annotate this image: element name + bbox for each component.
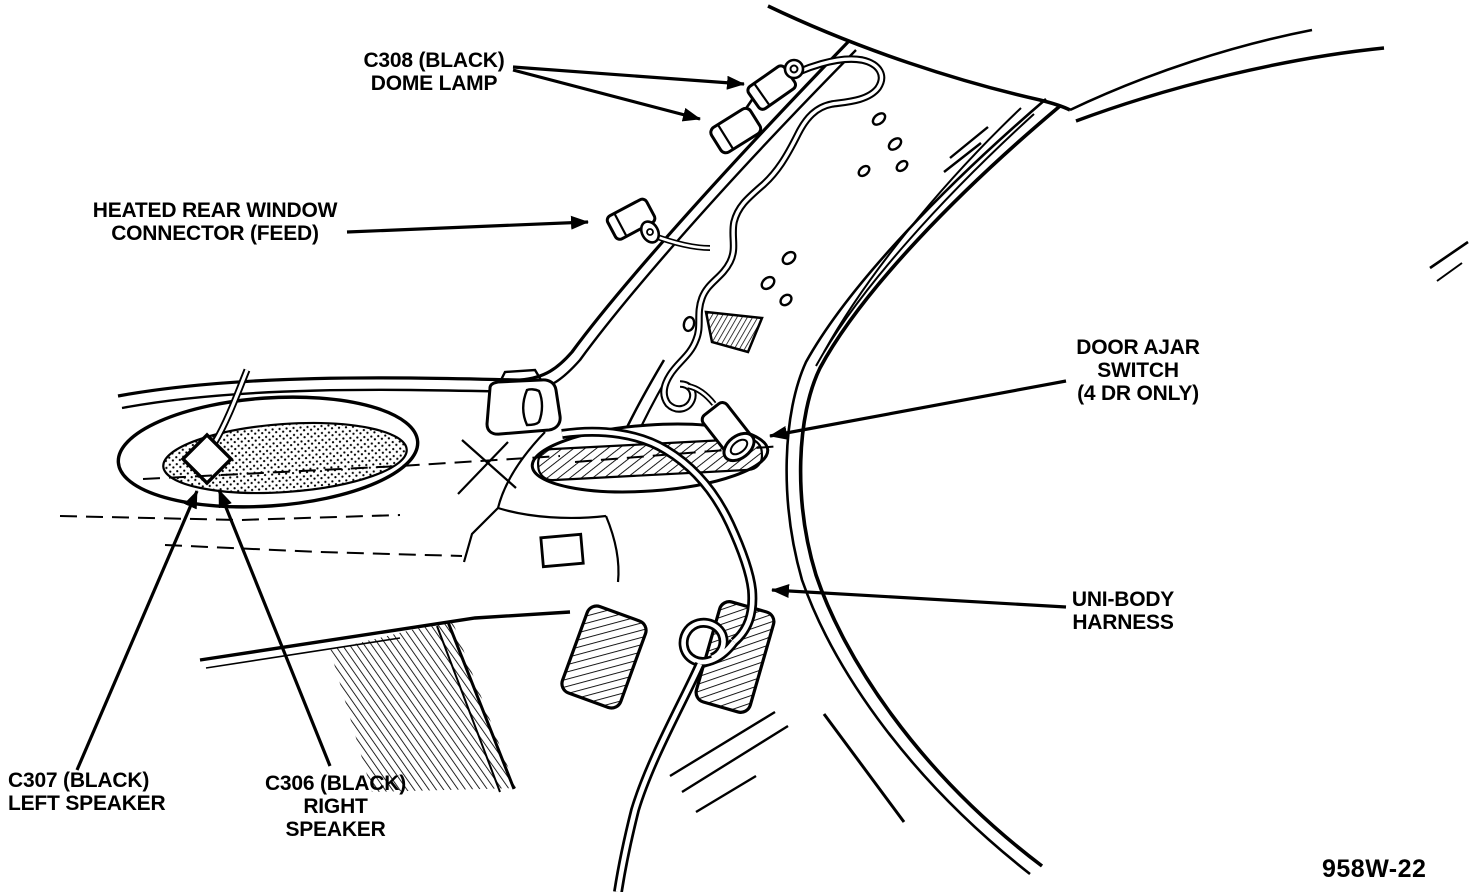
callout-unibody-harness: UNI-BODY HARNESS <box>1058 588 1188 634</box>
wiring-diagram-artwork <box>0 0 1472 892</box>
pillar-access-hole <box>706 312 762 352</box>
figure-number: 958W-22 <box>1322 855 1426 884</box>
callout-c308-dome-lamp: C308 (BLACK) DOME LAMP <box>350 49 518 95</box>
dome-lamp-harness-wire <box>664 59 881 409</box>
hrw-leader <box>347 222 588 232</box>
small-rect-hole <box>541 534 583 566</box>
door-ajar-leader <box>770 381 1066 436</box>
callout-line: C308 (BLACK) <box>350 49 518 72</box>
callout-line: CONNECTOR (FEED) <box>86 222 344 245</box>
c306-leader <box>219 490 330 766</box>
service-manual-figure: C308 (BLACK) DOME LAMP HEATED REAR WINDO… <box>0 0 1472 892</box>
c308-leader-upper <box>513 67 744 84</box>
callout-door-ajar-switch: DOOR AJAR SWITCH (4 DR ONLY) <box>1058 336 1218 405</box>
callout-line: RIGHT <box>258 795 413 818</box>
unibody-leader <box>772 590 1066 607</box>
callout-line: HARNESS <box>1058 611 1188 634</box>
callout-line: SWITCH <box>1058 359 1218 382</box>
callout-line: C307 (BLACK) <box>8 769 178 792</box>
callout-line: LEFT SPEAKER <box>8 792 178 815</box>
callout-c307-left-speaker: C307 (BLACK) LEFT SPEAKER <box>8 769 178 815</box>
left-speaker-opening <box>115 388 422 517</box>
callout-line: C306 (BLACK) <box>258 772 413 795</box>
callout-line: DOME LAMP <box>350 72 518 95</box>
callout-line: SPEAKER <box>258 818 413 841</box>
anchor-slot-left <box>559 603 649 711</box>
c307-leader <box>77 491 197 770</box>
callout-line: DOOR AJAR <box>1058 336 1218 359</box>
callout-heated-rear-window: HEATED REAR WINDOW CONNECTOR (FEED) <box>86 199 344 245</box>
callout-c306-right-speaker: C306 (BLACK) RIGHT SPEAKER <box>258 772 413 841</box>
callout-line: HEATED REAR WINDOW <box>86 199 344 222</box>
callout-line: UNI-BODY <box>1058 588 1188 611</box>
lower-trim-lines <box>670 712 788 812</box>
quarter-trim-shading <box>330 620 516 792</box>
callout-line: (4 DR ONLY) <box>1058 382 1218 405</box>
roof-outline <box>768 6 1468 281</box>
